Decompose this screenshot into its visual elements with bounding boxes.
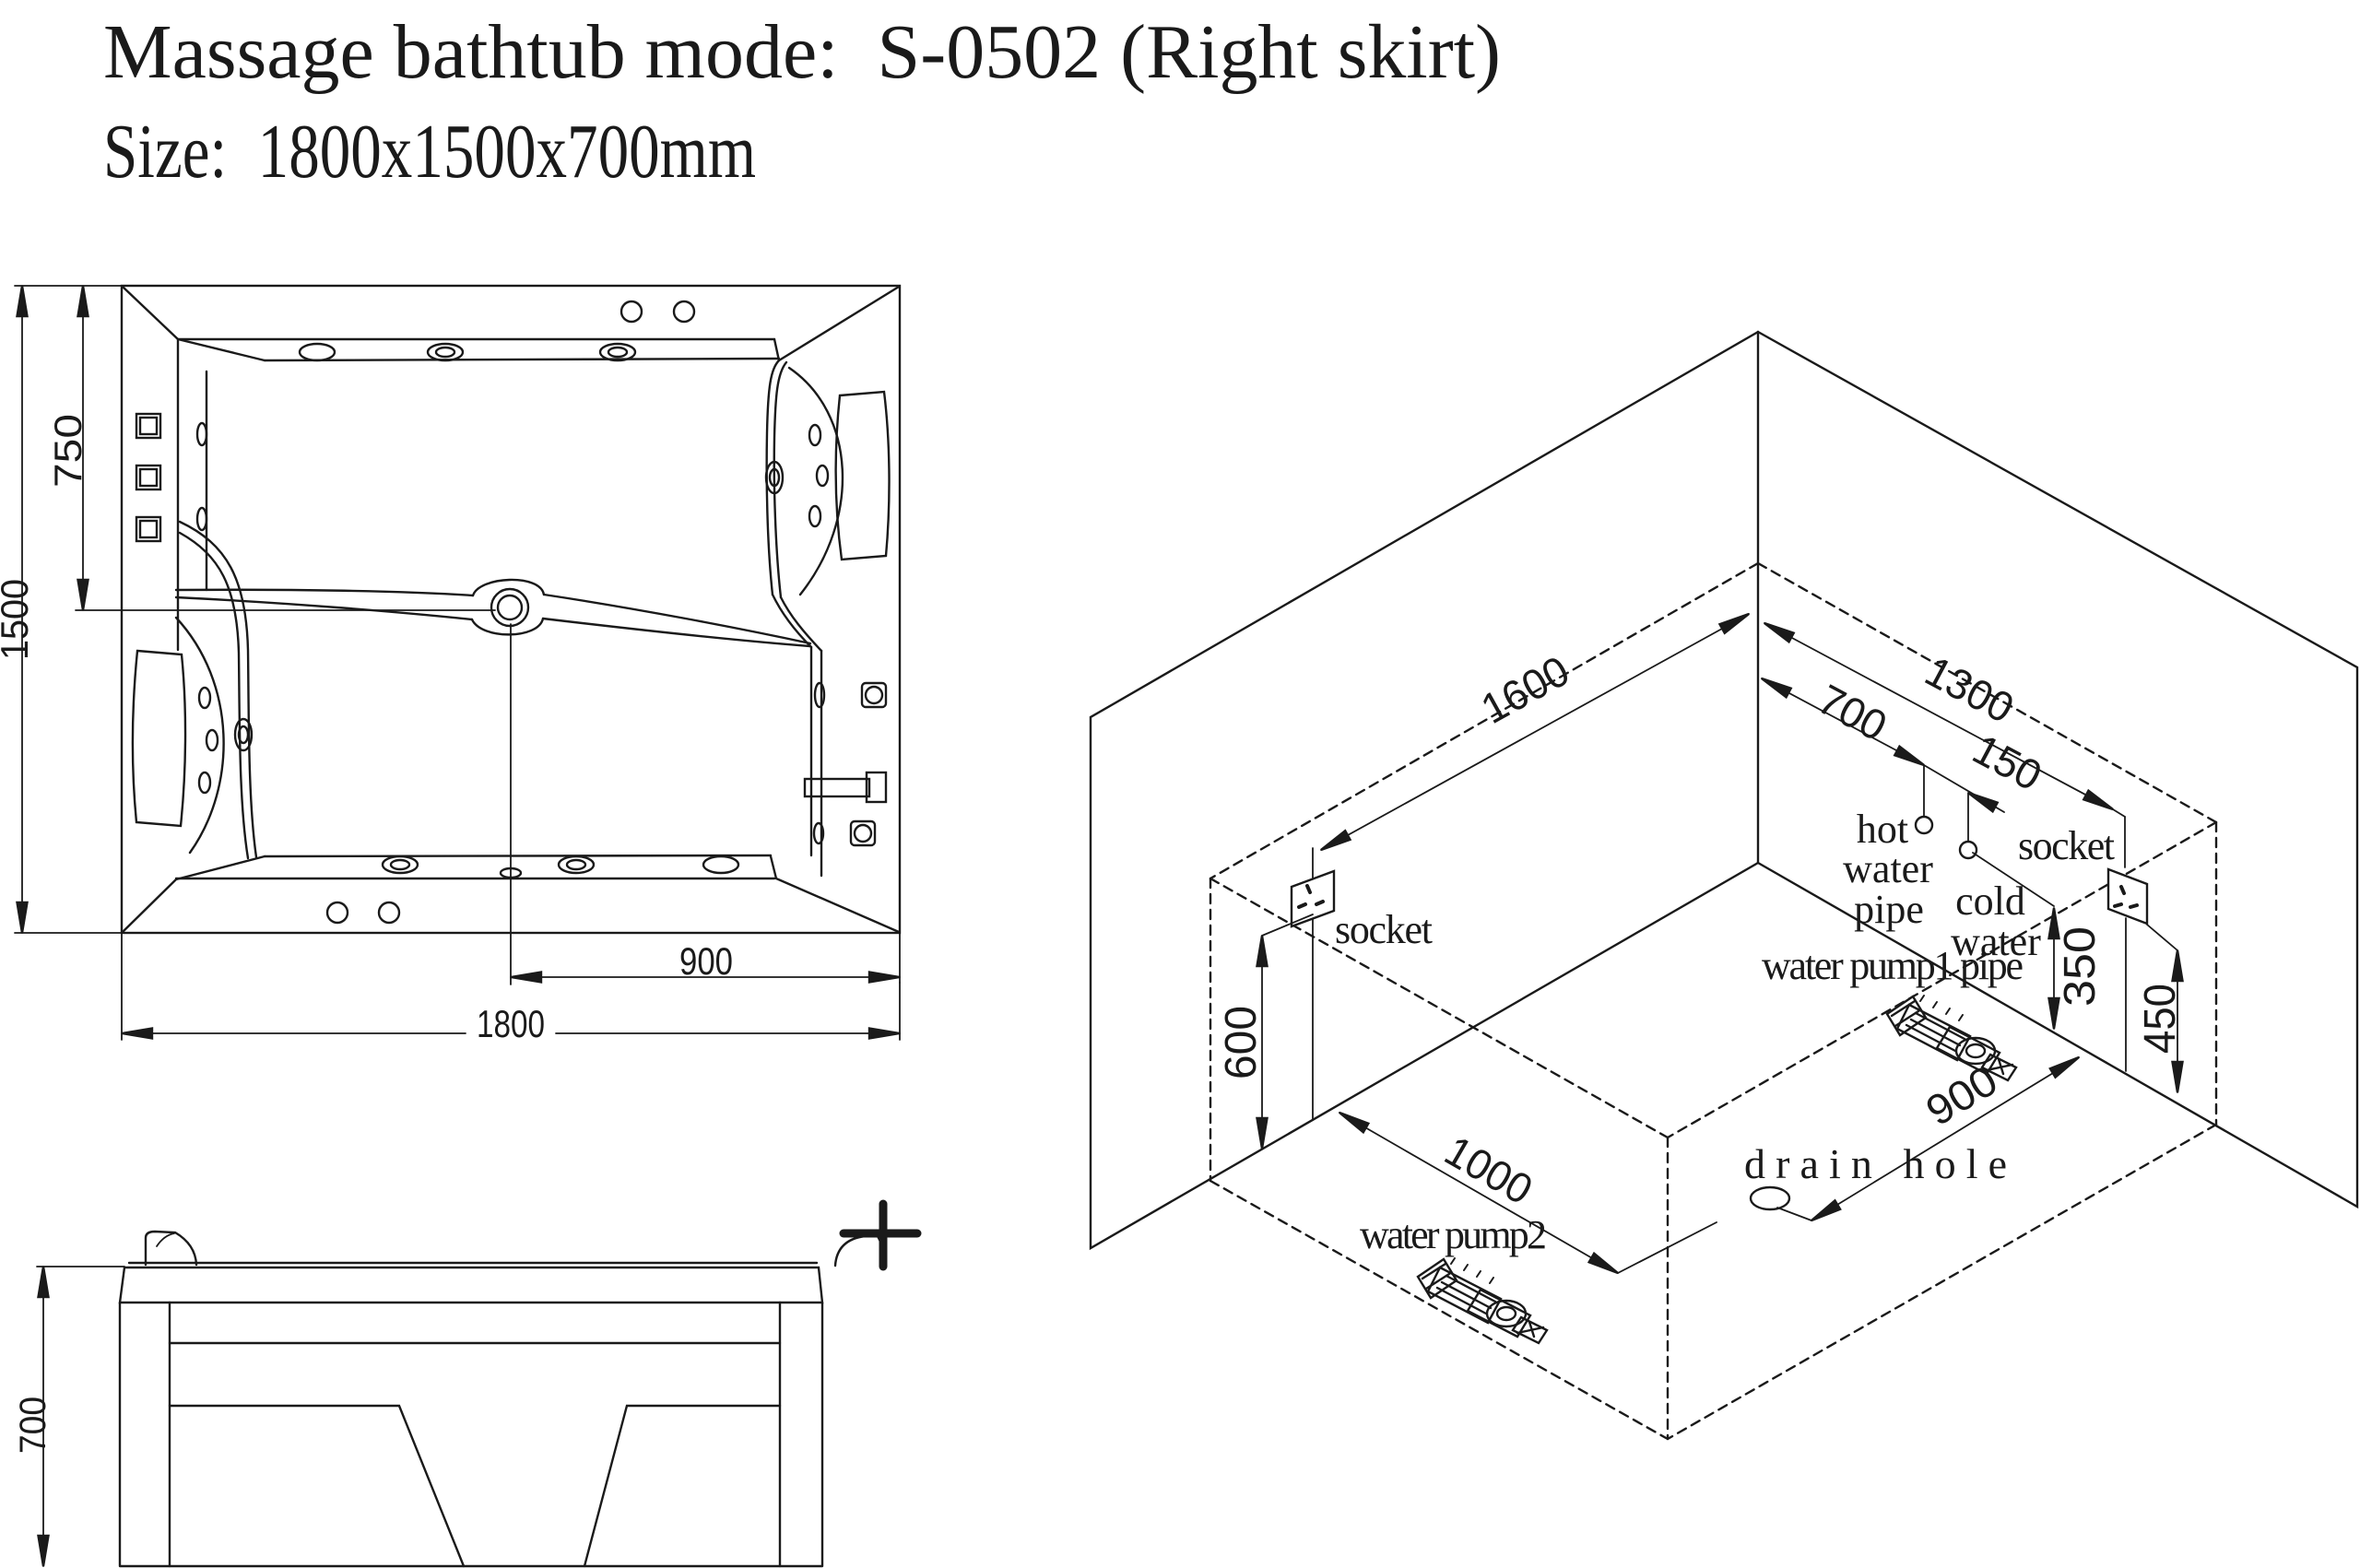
svg-text:Massage bathtub mode: S-0502: Massage bathtub mode: S-0502 (Right skir…	[103, 9, 1501, 95]
svg-text:1600: 1600	[1473, 646, 1577, 733]
svg-text:700: 700	[13, 1397, 53, 1454]
svg-text:water pump1 pipe: water pump1 pipe	[1762, 943, 2024, 988]
svg-text:900: 900	[1917, 1055, 2005, 1135]
svg-text:600: 600	[1217, 1006, 1266, 1079]
svg-text:900: 900	[679, 939, 733, 983]
svg-text:cold: cold	[1955, 878, 2025, 924]
svg-text:1500: 1500	[0, 579, 36, 660]
svg-text:water: water	[1843, 846, 1933, 891]
svg-text:1000: 1000	[1437, 1126, 1541, 1214]
svg-text:hot: hot	[1857, 807, 1908, 852]
svg-text:water pump2: water pump2	[1360, 1212, 1547, 1257]
svg-text:drain hole: drain hole	[1744, 1140, 2007, 1187]
svg-text:1800: 1800	[477, 1002, 545, 1045]
svg-text:socket: socket	[1335, 907, 1433, 952]
svg-text:750: 750	[46, 414, 89, 488]
svg-text:150: 150	[1965, 725, 2050, 800]
svg-text:Size: 1800x1500x700mm: Size: 1800x1500x700mm	[103, 109, 756, 195]
svg-text:pipe: pipe	[1854, 887, 1924, 932]
svg-text:1300: 1300	[1917, 646, 2022, 732]
svg-text:350: 350	[2056, 926, 2105, 1007]
svg-text:socket: socket	[2018, 823, 2115, 868]
svg-text:450: 450	[2136, 984, 2185, 1054]
